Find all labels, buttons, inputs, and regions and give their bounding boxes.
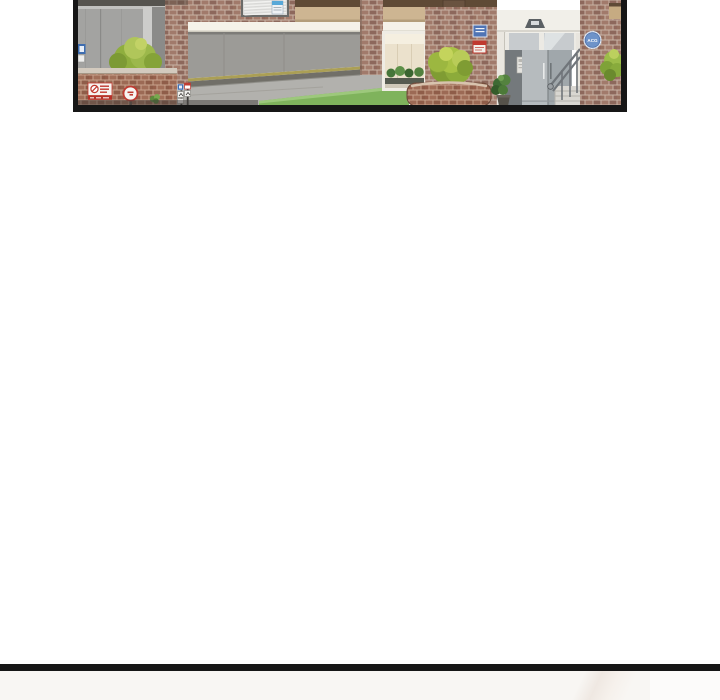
next-panel-border xyxy=(0,664,720,671)
window-with-blinds xyxy=(241,0,289,17)
next-panel-shading-right xyxy=(650,671,720,700)
red-notice-sign xyxy=(473,41,486,53)
acg-badge: ACG xyxy=(584,31,602,49)
webtoon-page: ACG xyxy=(0,0,720,700)
door-handle xyxy=(543,63,545,79)
panel-artwork: ACG xyxy=(73,0,627,112)
wall-sign-small-left xyxy=(78,44,86,62)
comic-panel-image: ACG xyxy=(73,0,627,112)
building-entrance xyxy=(491,10,580,106)
no-parking-sign xyxy=(88,83,112,100)
upper-brick-band xyxy=(188,0,295,22)
window-poster xyxy=(272,1,283,14)
panel-gutter xyxy=(0,112,720,664)
next-panel-content xyxy=(0,671,720,700)
brick-column-far-right: ACG xyxy=(580,0,624,106)
acg-badge-label: ACG xyxy=(587,38,598,43)
lobby-window xyxy=(382,31,427,91)
door-handle xyxy=(550,63,552,79)
